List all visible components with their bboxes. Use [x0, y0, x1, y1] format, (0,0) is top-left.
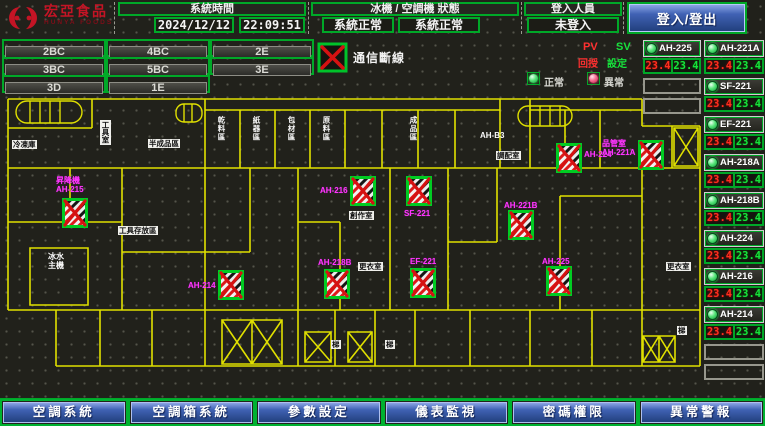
header-separator: [308, 2, 309, 34]
comm-loss-label: 通信斷線: [353, 49, 405, 66]
nav-button-cell: 儀表監視: [383, 399, 511, 426]
nav-button-空調系統[interactable]: 空調系統: [3, 402, 125, 423]
unit-status-box-ah-221a[interactable]: AH-221A: [704, 40, 764, 57]
map-room-label: 梯: [385, 340, 395, 349]
sv-value: 23.4: [735, 60, 762, 72]
login-status-value: 未登入: [527, 17, 619, 33]
unit-status-panel: AH-22523.423.4AH-221A23.423.4SF-22123.42…: [641, 38, 765, 388]
nav-button-參數設定[interactable]: 參數設定: [258, 402, 380, 423]
map-unit-icon-ah-214[interactable]: [218, 270, 244, 300]
unit-status-light: [646, 43, 657, 54]
floor-button-cell: 4BC: [106, 39, 210, 57]
map-unit-label: AH-216: [320, 186, 348, 195]
empty-unit-slot: [704, 364, 764, 380]
map-room-label: 半成品區: [148, 139, 180, 148]
nav-button-異常警報[interactable]: 異常警報: [641, 402, 763, 423]
floor-button-cell: 3BC: [2, 57, 106, 75]
sv-value: 23.4: [735, 250, 762, 262]
chiller-status-value: 系統正常: [322, 17, 394, 33]
unit-name: EF-221: [720, 119, 751, 130]
map-room-label: 工具存放區: [118, 226, 158, 235]
sv-value: 23.4: [673, 60, 699, 72]
unit-status-light: [707, 309, 718, 320]
unit-value-row: 23.423.4: [704, 210, 764, 226]
map-unit-label: 品管室AH-221A: [602, 139, 635, 157]
setpoint-label: 設定: [607, 55, 627, 70]
unit-status-box-ah-214[interactable]: AH-214: [704, 306, 764, 323]
map-unit-label: AH-218B: [318, 258, 351, 267]
nav-button-cell: 參數設定: [255, 399, 383, 426]
header-separator: [521, 2, 522, 34]
login-logout-button[interactable]: 登入/登出: [629, 4, 745, 32]
unit-value-row: 23.423.4: [643, 58, 701, 74]
unit-value-row: 23.423.4: [704, 286, 764, 302]
unit-name: AH-218B: [720, 195, 760, 206]
pv-value: 23.4: [706, 174, 735, 186]
sv-value: 23.4: [735, 98, 762, 110]
nav-button-cell: 空調箱系統: [128, 399, 256, 426]
map-unit-icon-ah-218b[interactable]: [324, 269, 350, 299]
floor-button-cell: 3E: [210, 57, 314, 75]
pv-value: 23.4: [645, 60, 673, 72]
unit-status-box-ah-224[interactable]: AH-224: [704, 230, 764, 247]
header-separator: [623, 2, 624, 34]
system-date-value: 2024/12/12: [154, 17, 234, 33]
map-room-label: 冷凍庫: [12, 140, 37, 149]
unit-value-row: 23.423.4: [704, 96, 764, 112]
pv-value: 23.4: [706, 136, 735, 148]
map-unit-label: 昇降機AH-215: [56, 176, 84, 194]
sv-value: 23.4: [735, 288, 762, 300]
abnormal-light: [587, 72, 600, 85]
pv-value: 23.4: [706, 212, 735, 224]
map-room-label: 乾料區: [216, 116, 227, 142]
map-room-label: 原料區: [321, 116, 332, 142]
floor-button-3e[interactable]: 3E: [213, 64, 311, 76]
unit-value-row: 23.423.4: [704, 134, 764, 150]
nav-button-cell: 空調系統: [0, 399, 128, 426]
unit-value-row: 23.423.4: [704, 172, 764, 188]
unit-name: AH-214: [720, 309, 753, 320]
ac-status-value: 系統正常: [398, 17, 480, 33]
floor-button-1e[interactable]: 1E: [109, 82, 207, 94]
map-unit-icon-ah-215[interactable]: [62, 198, 88, 228]
unit-value-row: 23.423.4: [704, 248, 764, 264]
unit-status-light: [707, 271, 718, 282]
map-unit-icon-ah-221a[interactable]: [638, 140, 664, 170]
hmi-screen: { "header": { "logo": { "brand": "宏亞食品",…: [0, 0, 765, 426]
nav-button-空調箱系統[interactable]: 空調箱系統: [131, 402, 253, 423]
nav-button-cell: 密碼權限: [510, 399, 638, 426]
floor-button-cell: 5BC: [106, 57, 210, 75]
pv-label: PV: [583, 41, 598, 53]
feedback-label: 回授: [578, 55, 598, 70]
system-clock-value: 22:09:51: [239, 17, 305, 33]
unit-name: AH-216: [720, 271, 753, 282]
empty-unit-slot: [704, 344, 764, 360]
map-unit-icon-ah-216[interactable]: [350, 176, 376, 206]
map-unit-label: AH-214: [188, 281, 216, 290]
unit-status-light: [707, 157, 718, 168]
floor-button-cell: 3D: [2, 75, 106, 93]
pv-value: 23.4: [706, 98, 735, 110]
map-room-label: AH-B3: [480, 131, 504, 140]
empty-unit-slot: [643, 78, 701, 94]
hunya-logo-icon: [6, 3, 40, 33]
map-room-label: 冰水 主機: [48, 252, 64, 270]
sv-label: SV: [616, 41, 631, 53]
login-user-label: 登入人員: [524, 2, 622, 16]
unit-status-light: [707, 119, 718, 130]
map-unit-label: EF-221: [410, 257, 436, 266]
brand-subtitle: HUNYA FOODS: [44, 19, 113, 26]
map-room-label: 工具室: [100, 120, 111, 145]
map-room-label: 更衣室: [666, 262, 691, 271]
map-room-label: 更衣室: [358, 262, 383, 271]
unit-name: SF-221: [720, 81, 751, 92]
unit-status-box-ah-218a[interactable]: AH-218A: [704, 154, 764, 171]
map-room-label: 梯: [331, 340, 341, 349]
floor-button-cell: 2BC: [2, 39, 106, 57]
unit-status-box-ah-218b[interactable]: AH-218B: [704, 192, 764, 209]
floor-select-group: 2BC4BC2E3BC5BC3E3D1E: [2, 39, 314, 93]
empty-unit-slot: [643, 98, 701, 114]
map-unit-label: SF-221: [404, 209, 430, 218]
unit-name: AH-218A: [720, 157, 760, 168]
sv-value: 23.4: [735, 212, 762, 224]
elevator-symbol: [222, 128, 698, 364]
map-unit-icon-ah-225[interactable]: [546, 266, 572, 296]
pv-value: 23.4: [706, 250, 735, 262]
legend: 通信斷線 PV SV 回授 設定 正常 異常: [315, 40, 640, 92]
pv-value: 23.4: [706, 288, 735, 300]
normal-light: [527, 72, 540, 85]
map-unit-icon-sf-221[interactable]: [406, 176, 432, 206]
map-room-label: 成品區: [408, 116, 419, 142]
unit-status-box-sf-221[interactable]: SF-221: [704, 78, 764, 95]
sv-value: 23.4: [735, 136, 762, 148]
sv-value: 23.4: [735, 174, 762, 186]
map-room-label: 紙器區: [251, 116, 262, 142]
nav-button-cell: 異常警報: [638, 399, 765, 426]
unit-status-light: [707, 43, 718, 54]
unit-status-box-ef-221[interactable]: EF-221: [704, 116, 764, 133]
map-unit-icon-ah-221b[interactable]: [508, 210, 534, 240]
unit-name: AH-221A: [720, 43, 760, 54]
floor-button-3d[interactable]: 3D: [5, 82, 103, 94]
brand-name: 宏亞食品: [44, 4, 113, 19]
unit-value-row: 23.423.4: [704, 58, 764, 74]
pv-value: 23.4: [706, 60, 735, 72]
machine-status-label: 冰機 / 空調機 狀態: [311, 2, 519, 16]
map-room-label: 創作室: [349, 211, 374, 220]
unit-status-light: [707, 233, 718, 244]
comm-loss-icon: [317, 42, 348, 73]
map-unit-label: AH-221B: [504, 201, 537, 210]
unit-status-light: [707, 195, 718, 206]
pv-value: 23.4: [706, 326, 735, 338]
map-room-label: 調配室: [496, 151, 521, 160]
unit-status-box-ah-225[interactable]: AH-225: [643, 40, 701, 57]
floor-button-cell: 2E: [210, 39, 314, 57]
sv-value: 23.4: [735, 326, 762, 338]
nav-button-儀表監視[interactable]: 儀表監視: [386, 402, 508, 423]
map-unit-icon-ah-224[interactable]: [556, 143, 582, 173]
wall-lines: [8, 99, 700, 366]
unit-name: AH-225: [659, 43, 692, 54]
header-separator: [114, 2, 115, 34]
map-unit-label: AH-225: [542, 257, 570, 266]
header-bar: 宏亞食品 HUNYA FOODS 系統時間 2024/12/12 22:09:5…: [0, 0, 765, 37]
unit-name: AH-224: [720, 233, 753, 244]
system-time-label: 系統時間: [118, 2, 306, 16]
abnormal-label: 異常: [604, 74, 624, 89]
floor-button-cell: 1E: [106, 75, 210, 93]
map-room-label: 梯: [677, 326, 687, 335]
unit-status-box-ah-216[interactable]: AH-216: [704, 268, 764, 285]
normal-label: 正常: [544, 74, 564, 89]
nav-button-密碼權限[interactable]: 密碼權限: [513, 402, 635, 423]
map-unit-icon-ef-221[interactable]: [410, 268, 436, 298]
bottom-nav-bar: 空調系統空調箱系統參數設定儀表監視密碼權限異常警報: [0, 398, 765, 426]
unit-status-light: [707, 81, 718, 92]
map-room-label: 包材區: [286, 116, 297, 142]
unit-value-row: 23.423.4: [704, 324, 764, 340]
